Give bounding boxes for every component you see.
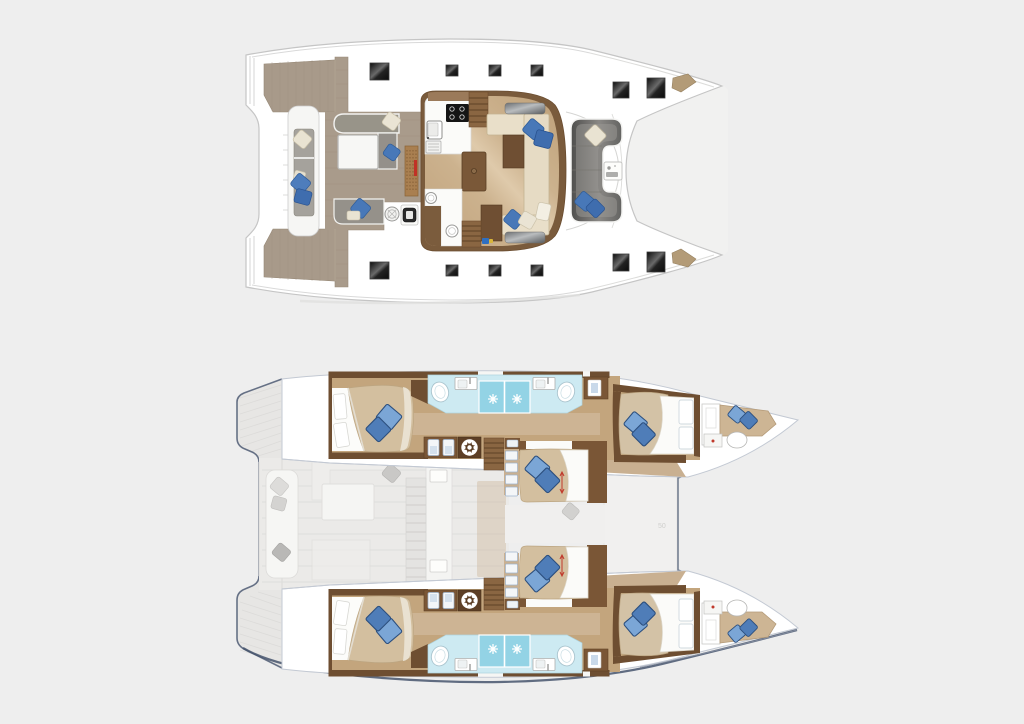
svg-text:50: 50 xyxy=(658,523,666,530)
